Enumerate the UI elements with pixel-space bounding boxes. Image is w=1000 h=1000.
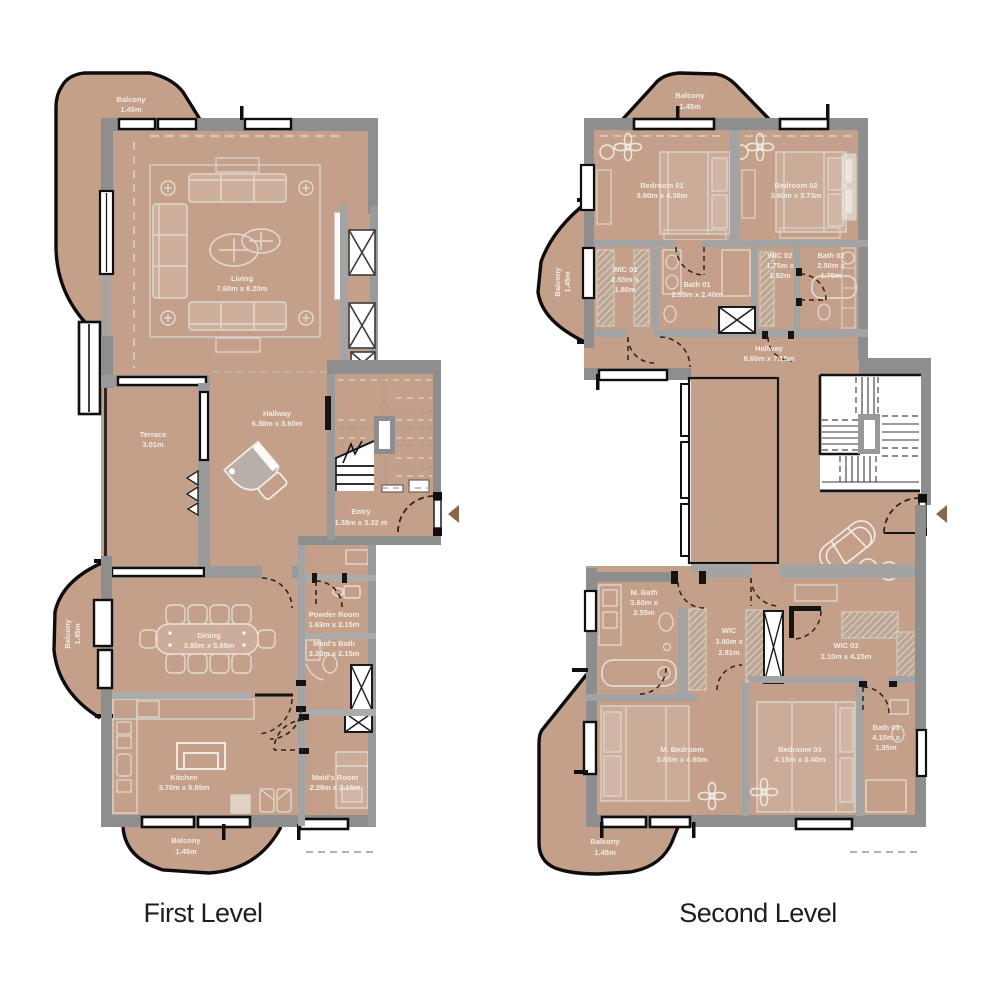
svg-text:3.60m x 3.73m: 3.60m x 3.73m xyxy=(771,191,822,200)
svg-text:Bath 01: Bath 01 xyxy=(683,280,710,289)
svg-text:1.80m: 1.80m xyxy=(614,285,636,294)
svg-text:2.55m x 2.40m: 2.55m x 2.40m xyxy=(672,290,723,299)
svg-text:Terrace: Terrace xyxy=(140,430,167,439)
svg-text:1.82m: 1.82m xyxy=(769,271,791,280)
svg-text:1.45m: 1.45m xyxy=(120,105,142,114)
svg-text:3.60m x: 3.60m x xyxy=(630,598,658,607)
svg-text:Bath 03: Bath 03 xyxy=(872,723,899,732)
svg-text:Balcony: Balcony xyxy=(171,836,201,845)
svg-text:Maid's Room: Maid's Room xyxy=(312,773,359,782)
svg-text:M. Bath: M. Bath xyxy=(630,588,658,597)
svg-text:4.15m x: 4.15m x xyxy=(872,733,900,742)
svg-text:2.50m x: 2.50m x xyxy=(817,261,845,270)
svg-text:Second Level: Second Level xyxy=(679,898,837,928)
svg-text:1.45m: 1.45m xyxy=(73,623,82,645)
svg-text:Powder Room: Powder Room xyxy=(309,610,360,619)
svg-text:Dining: Dining xyxy=(197,631,221,640)
svg-text:4.15m x 3.40m: 4.15m x 3.40m xyxy=(775,755,826,764)
svg-text:2.55m x: 2.55m x xyxy=(611,275,639,284)
svg-text:Bedroom 02: Bedroom 02 xyxy=(774,181,817,190)
svg-text:First Level: First Level xyxy=(143,898,262,928)
svg-text:3.60m x 4.38m: 3.60m x 4.38m xyxy=(637,191,688,200)
svg-text:Bath 02: Bath 02 xyxy=(817,251,844,260)
svg-text:3.80m x 5.85m: 3.80m x 5.85m xyxy=(184,641,235,650)
svg-text:3.30m x 2.15m: 3.30m x 2.15m xyxy=(309,649,360,658)
svg-text:Balcony: Balcony xyxy=(675,91,705,100)
svg-text:M. Bedroom: M. Bedroom xyxy=(660,745,704,754)
svg-text:Living: Living xyxy=(231,274,254,283)
svg-text:WIC 03: WIC 03 xyxy=(833,641,858,650)
svg-text:2.28m x 2.15m: 2.28m x 2.15m xyxy=(310,783,361,792)
svg-text:1.75m x: 1.75m x xyxy=(766,261,794,270)
svg-text:3.85m x 4.60m: 3.85m x 4.60m xyxy=(657,755,708,764)
svg-text:2.55m: 2.55m xyxy=(633,608,655,617)
svg-text:WIC 01: WIC 01 xyxy=(612,265,637,274)
svg-text:Entry: Entry xyxy=(351,507,371,516)
svg-text:1.63m x 2.15m: 1.63m x 2.15m xyxy=(309,620,360,629)
svg-text:Bedroom 01: Bedroom 01 xyxy=(640,181,683,190)
svg-text:1.45m: 1.45m xyxy=(594,848,616,857)
svg-text:3.01m: 3.01m xyxy=(142,440,164,449)
svg-text:Maid's Bath: Maid's Bath xyxy=(313,639,355,648)
svg-text:Bedroom 03: Bedroom 03 xyxy=(778,745,821,754)
svg-text:8.60m x 7.15m: 8.60m x 7.15m xyxy=(744,354,795,363)
svg-text:2.10m x 4.25m: 2.10m x 4.25m xyxy=(821,652,872,661)
svg-text:Balcony: Balcony xyxy=(590,837,620,846)
svg-text:3.70m x 5.85m: 3.70m x 5.85m xyxy=(159,783,210,792)
svg-text:Kitchen: Kitchen xyxy=(170,773,198,782)
svg-text:1.95m: 1.95m xyxy=(875,743,897,752)
svg-text:1.45m: 1.45m xyxy=(563,271,572,293)
svg-text:WIC: WIC xyxy=(722,626,737,635)
svg-text:Balcony: Balcony xyxy=(553,267,562,297)
svg-text:2.81m: 2.81m xyxy=(718,648,740,657)
svg-text:Hallway: Hallway xyxy=(755,344,784,353)
svg-text:Balcony: Balcony xyxy=(63,619,72,649)
svg-text:1.45m: 1.45m xyxy=(175,847,197,856)
svg-text:1.70m: 1.70m xyxy=(820,271,842,280)
svg-text:3.80m x: 3.80m x xyxy=(715,637,743,646)
svg-text:Balcony: Balcony xyxy=(116,95,146,104)
svg-text:7.60m x 8.20m: 7.60m x 8.20m xyxy=(217,284,268,293)
svg-text:1.45m: 1.45m xyxy=(679,102,701,111)
svg-text:6.30m x 3.60m: 6.30m x 3.60m xyxy=(252,419,303,428)
svg-text:Hallway: Hallway xyxy=(263,409,292,418)
svg-text:1.38m x 3.32 m: 1.38m x 3.32 m xyxy=(335,518,388,527)
svg-text:WIC 02: WIC 02 xyxy=(767,251,792,260)
